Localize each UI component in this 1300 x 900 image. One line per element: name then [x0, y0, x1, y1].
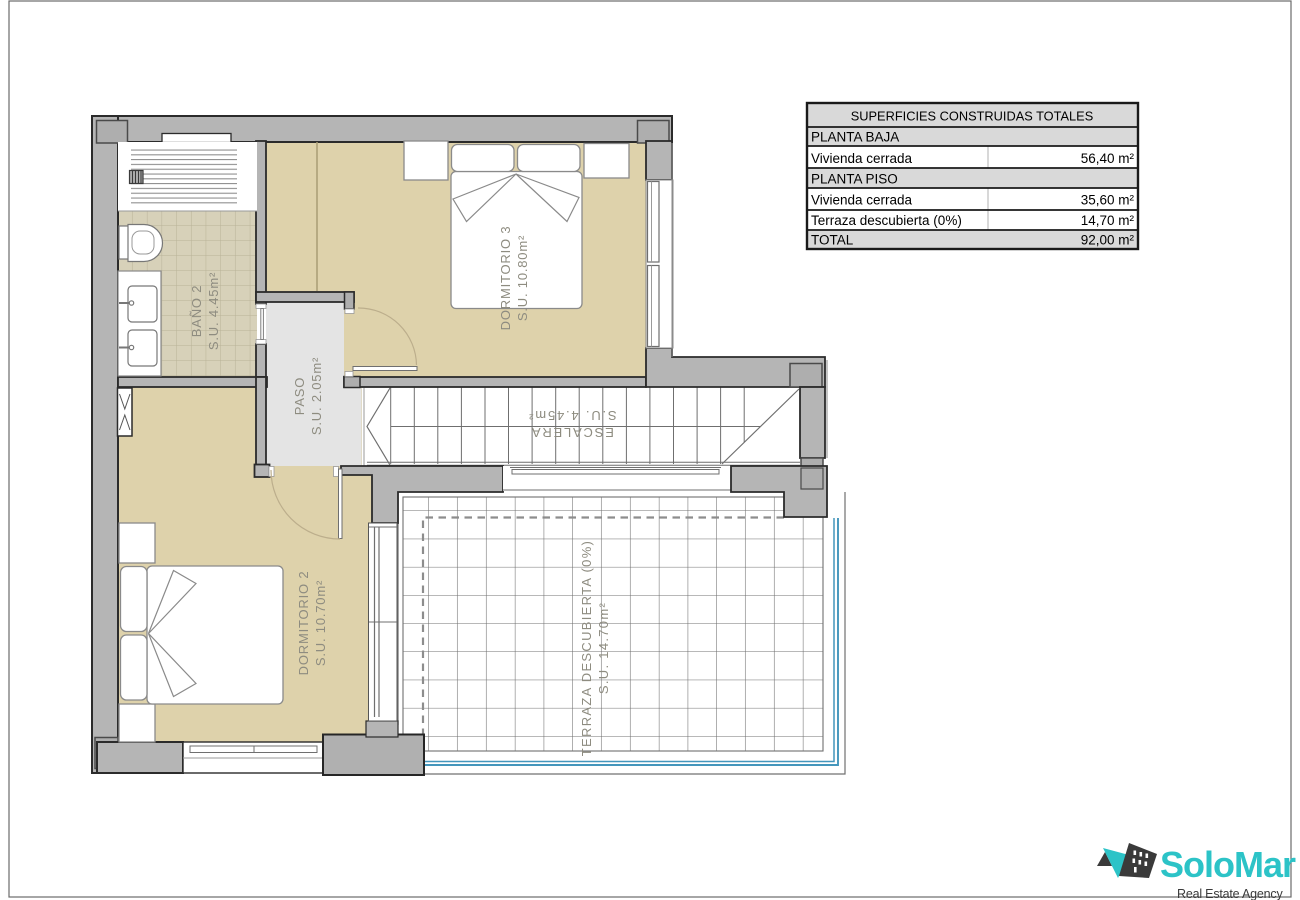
svg-text:PLANTA BAJA: PLANTA BAJA	[811, 130, 899, 145]
svg-text:TERRAZA DESCUBIERTA (0%): TERRAZA DESCUBIERTA (0%)	[579, 540, 594, 756]
svg-text:S.U. 10.80m²: S.U. 10.80m²	[515, 235, 530, 321]
svg-text:Vivienda cerrada: Vivienda cerrada	[811, 151, 913, 166]
svg-text:S.U. 10.70m²: S.U. 10.70m²	[313, 580, 328, 666]
svg-text:Terraza descubierta (0%): Terraza descubierta (0%)	[811, 213, 962, 228]
svg-text:S.U. 4.45m²: S.U. 4.45m²	[206, 272, 221, 350]
svg-text:56,40 m²: 56,40 m²	[1081, 151, 1135, 166]
svg-text:14,70 m²: 14,70 m²	[1081, 213, 1135, 228]
svg-text:DORMITORIO 3: DORMITORIO 3	[498, 226, 513, 331]
svg-text:DORMITORIO 2: DORMITORIO 2	[296, 571, 311, 676]
svg-text:BAÑO 2: BAÑO 2	[189, 285, 204, 337]
svg-text:TOTAL: TOTAL	[811, 233, 854, 248]
svg-text:SoloMar: SoloMar	[1160, 844, 1296, 885]
svg-text:S.U. 4.45m²: S.U. 4.45m²	[527, 408, 616, 423]
svg-text:SUPERFICIES CONSTRUIDAS TOTALE: SUPERFICIES CONSTRUIDAS TOTALES	[851, 109, 1093, 124]
svg-text:35,60 m²: 35,60 m²	[1081, 193, 1135, 208]
svg-text:Vivienda cerrada: Vivienda cerrada	[811, 193, 913, 208]
svg-text:Real Estate Agency: Real Estate Agency	[1177, 887, 1283, 900]
svg-text:S.U. 2.05m²: S.U. 2.05m²	[309, 357, 324, 435]
svg-text:S.U. 14.70m²: S.U. 14.70m²	[596, 602, 611, 694]
svg-text:92,00 m²: 92,00 m²	[1081, 233, 1135, 248]
svg-text:PASO: PASO	[292, 377, 307, 415]
svg-text:ESCALERA: ESCALERA	[530, 425, 614, 440]
svg-text:PLANTA PISO: PLANTA PISO	[811, 172, 898, 187]
